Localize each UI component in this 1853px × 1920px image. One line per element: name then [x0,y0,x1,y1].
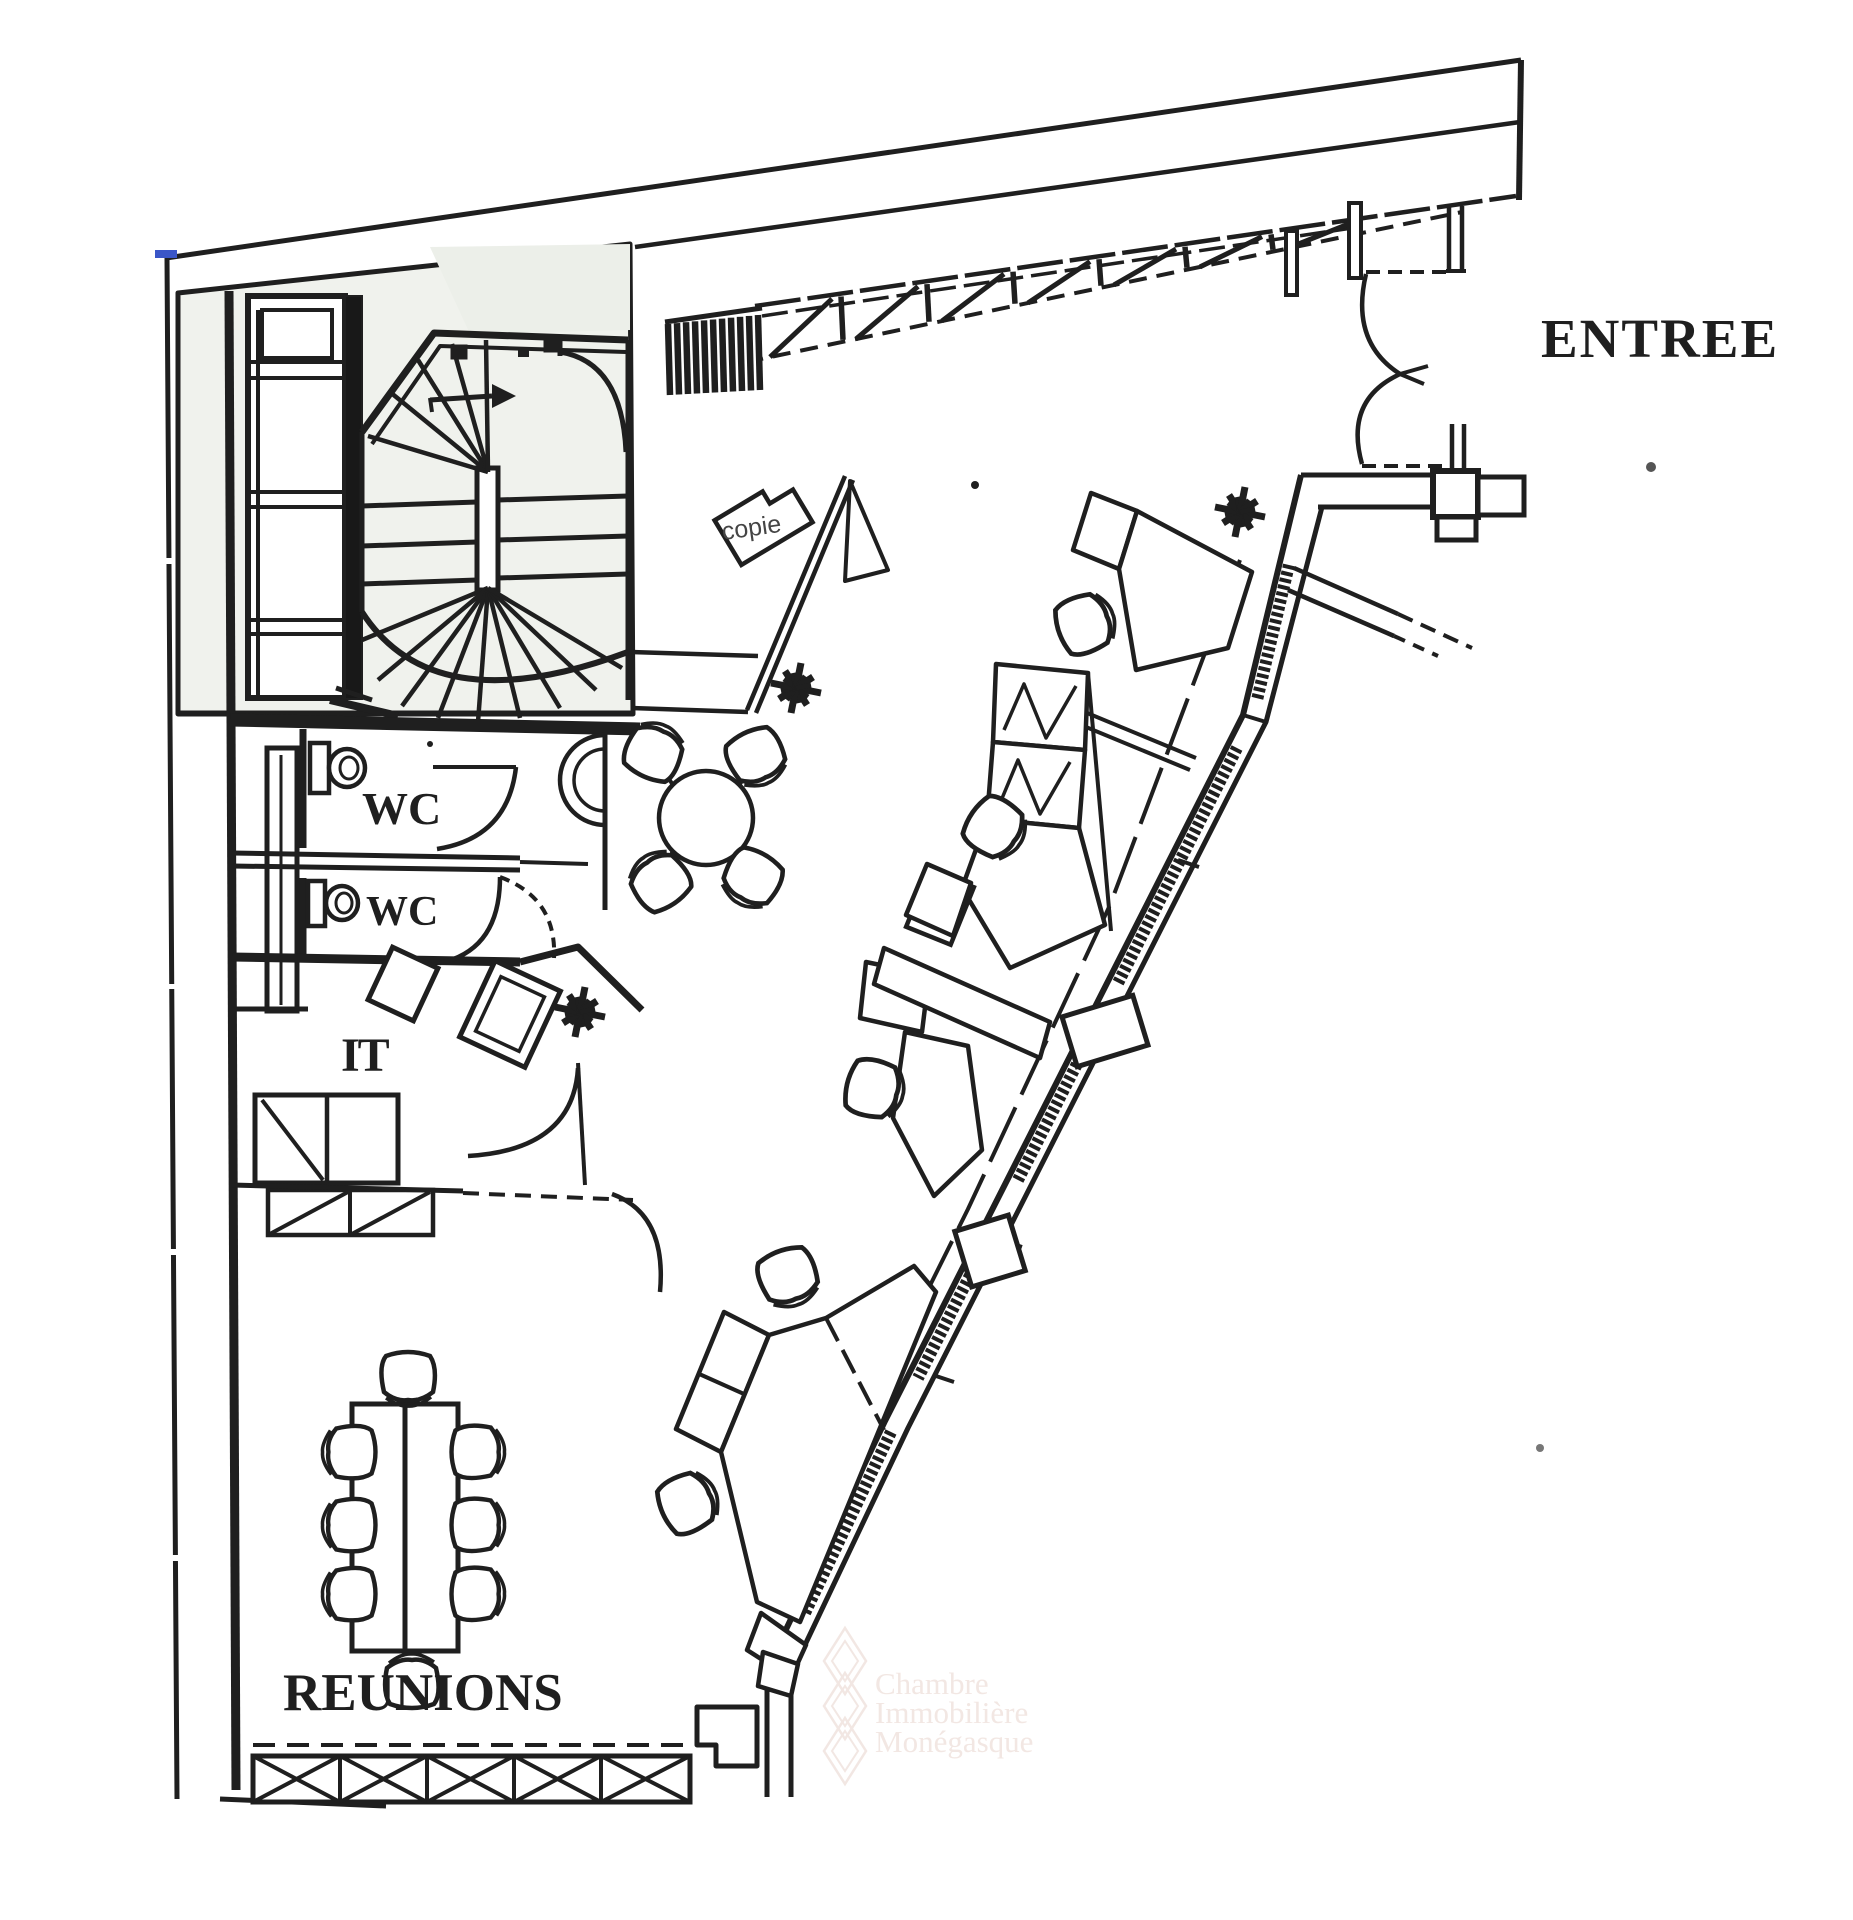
svg-text:WC: WC [362,783,441,834]
svg-text:REUNIONS: REUNIONS [283,1664,563,1722]
svg-text:IT: IT [341,1029,390,1082]
svg-text:WC: WC [366,889,438,935]
svg-text:ENTREE: ENTREE [1541,308,1779,369]
svg-text:Monégasque: Monégasque [875,1724,1033,1759]
